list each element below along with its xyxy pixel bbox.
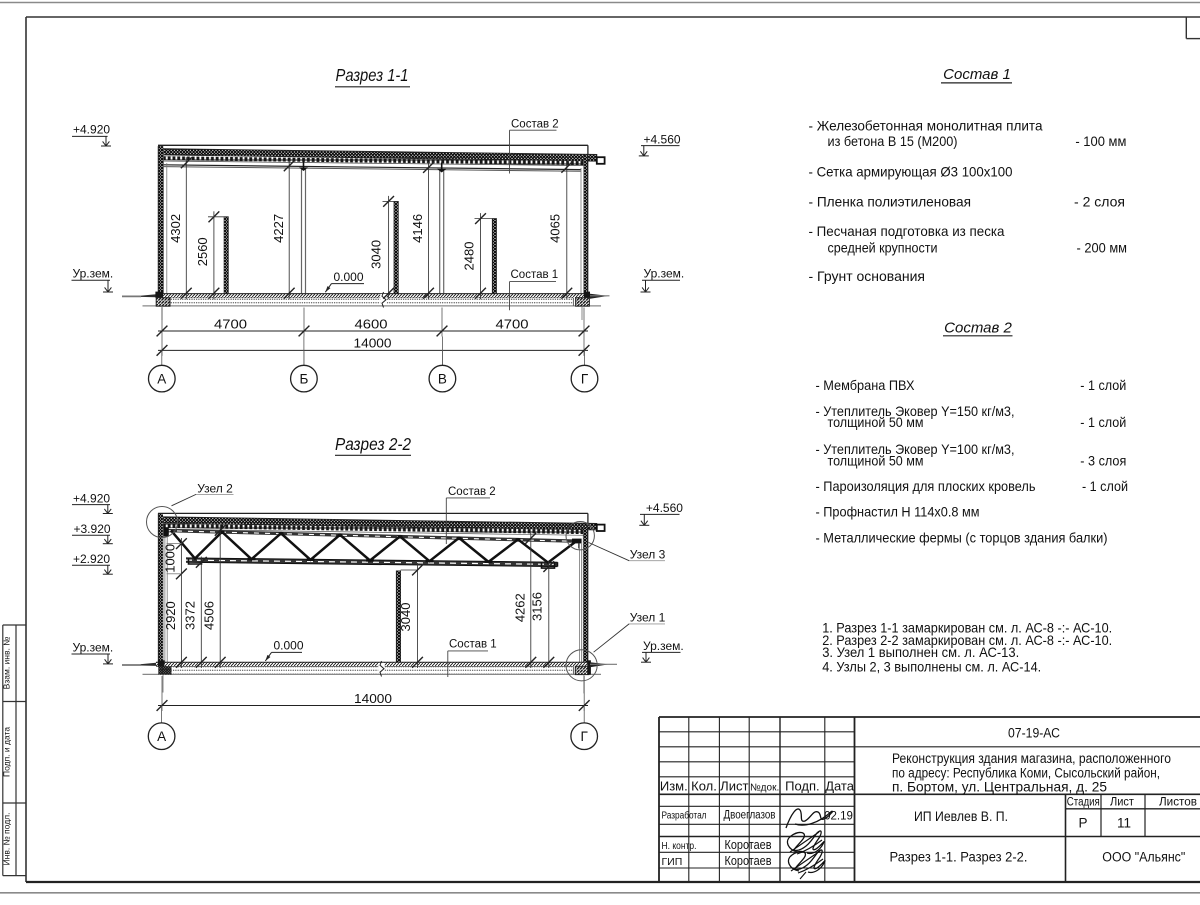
svg-text:Узел 1: Узел 1 <box>630 610 666 624</box>
svg-text:Стадия: Стадия <box>1067 797 1100 809</box>
svg-text:3040: 3040 <box>369 240 384 269</box>
svg-text:Подп. и дата: Подп. и дата <box>2 727 12 777</box>
svg-text:толщиной 50 мм: толщиной 50 мм <box>828 452 924 468</box>
svg-text:- 200 мм: - 200 мм <box>1077 239 1128 255</box>
svg-text:ИП Иевлев В. П.: ИП Иевлев В. П. <box>914 808 1008 824</box>
svg-text:А: А <box>157 729 166 744</box>
svg-text:3040: 3040 <box>398 603 413 632</box>
svg-text:2560: 2560 <box>195 237 210 266</box>
svg-text:Г: Г <box>581 729 589 744</box>
svg-text:14000: 14000 <box>354 691 392 706</box>
svg-text:1000: 1000 <box>163 544 178 573</box>
svg-text:2920: 2920 <box>163 601 178 630</box>
svg-text:Состав 1: Состав 1 <box>943 66 1011 83</box>
svg-text:14000: 14000 <box>354 336 392 351</box>
svg-text:Разрез 2-2: Разрез 2-2 <box>335 434 411 454</box>
svg-text:3156: 3156 <box>530 592 545 621</box>
svg-text:ООО "Альянс": ООО "Альянс" <box>1102 850 1185 865</box>
svg-text:Ур.зем.: Ур.зем. <box>73 640 114 654</box>
svg-text:Состав 2: Состав 2 <box>448 486 496 498</box>
svg-text:Лист: Лист <box>1110 797 1135 809</box>
svg-text:- 2 слоя: - 2 слоя <box>1074 193 1125 209</box>
svg-text:Ур.зем.: Ур.зем. <box>73 267 114 281</box>
svg-text:Н. контр.: Н. контр. <box>662 841 697 852</box>
svg-text:из бетона В 15 (М200): из бетона В 15 (М200) <box>828 133 958 149</box>
svg-text:4600: 4600 <box>355 316 388 331</box>
svg-text:4700: 4700 <box>214 316 247 331</box>
svg-text:Б: Б <box>299 371 308 386</box>
svg-text:- Железобетонная монолитная п: - Железобетонная монолитная плита <box>809 117 1043 133</box>
svg-text:2480: 2480 <box>461 242 476 271</box>
svg-text:Кол.: Кол. <box>691 778 717 793</box>
svg-text:Листов: Листов <box>1159 797 1197 809</box>
svg-text:4065: 4065 <box>547 214 562 243</box>
svg-text:4146: 4146 <box>410 214 425 243</box>
svg-text:толщиной 50 мм: толщиной 50 мм <box>828 414 924 430</box>
svg-text:- 3 слоя: - 3 слоя <box>1080 452 1126 468</box>
svg-text:Узел 3: Узел 3 <box>630 547 666 561</box>
svg-text:Состав 2: Состав 2 <box>944 320 1012 337</box>
svg-text:- Профнастил Н 114х0.8 мм: - Профнастил Н 114х0.8 мм <box>816 503 980 519</box>
svg-text:11: 11 <box>1117 816 1131 831</box>
svg-text:+2.920: +2.920 <box>73 552 110 566</box>
svg-text:4700: 4700 <box>496 316 529 331</box>
svg-text:ГИП: ГИП <box>662 856 683 868</box>
svg-text:- Песчаная подготовка из песка: - Песчаная подготовка из песка <box>809 223 1005 239</box>
svg-text:4302: 4302 <box>168 214 183 243</box>
svg-text:Ур.зем.: Ур.зем. <box>644 267 685 281</box>
svg-text:В: В <box>438 371 447 386</box>
svg-text:- 1 слой: - 1 слой <box>1080 377 1126 393</box>
svg-text:Реконструкция здания магазина,: Реконструкция здания магазина, расположе… <box>892 751 1171 766</box>
svg-text:4. Узлы 2, 3 выполнены см. л.: 4. Узлы 2, 3 выполнены см. л. АС-14. <box>822 659 1041 675</box>
svg-text:Изм.: Изм. <box>660 778 688 793</box>
svg-text:Г: Г <box>581 371 589 386</box>
svg-text:Дата: Дата <box>825 778 855 793</box>
svg-text:Р: Р <box>1078 816 1087 831</box>
svg-text:- Металлические фермы (с торцо: - Металлические фермы (с торцов здания б… <box>816 529 1108 545</box>
svg-text:+4.920: +4.920 <box>73 491 110 505</box>
svg-text:0.000: 0.000 <box>334 270 364 284</box>
svg-text:+4.560: +4.560 <box>646 501 683 515</box>
svg-text:Состав 2: Состав 2 <box>511 118 559 130</box>
svg-text:Коротаев: Коротаев <box>725 854 772 868</box>
svg-text:+3.920: +3.920 <box>74 522 111 536</box>
svg-text:Разрез 1-1. Разрез 2-2.: Разрез 1-1. Разрез 2-2. <box>890 850 1028 865</box>
svg-text:- Сетка армирующая Ø3 100х100: - Сетка армирующая Ø3 100х100 <box>809 163 1013 179</box>
svg-text:Состав 1: Состав 1 <box>511 269 559 281</box>
svg-text:Ур.зем.: Ур.зем. <box>643 639 684 653</box>
svg-text:средней крупности: средней крупности <box>828 239 938 255</box>
svg-text:Разработал: Разработал <box>662 810 707 822</box>
svg-text:- Пленка полиэтиленовая: - Пленка полиэтиленовая <box>809 193 972 209</box>
svg-text:4227: 4227 <box>271 214 286 243</box>
svg-text:+4.920: +4.920 <box>73 123 110 137</box>
svg-text:- 1 слой: - 1 слой <box>1080 414 1126 430</box>
svg-text:п. Бортом, ул. Центральная, д.: п. Бортом, ул. Центральная, д. 25 <box>892 779 1107 794</box>
svg-text:0.000: 0.000 <box>274 639 304 653</box>
svg-text:4262: 4262 <box>513 593 528 622</box>
svg-text:- 100 мм: - 100 мм <box>1075 133 1126 149</box>
svg-text:по адресу: Республика Коми, Сы: по адресу: Республика Коми, Сысольский р… <box>892 766 1160 781</box>
svg-text:Взам. инв. №: Взам. инв. № <box>2 637 12 690</box>
svg-text:- Пароизоляция для плоских кро: - Пароизоляция для плоских кровель <box>816 478 1036 494</box>
svg-text:4506: 4506 <box>202 601 217 630</box>
svg-text:Состав 1: Состав 1 <box>449 639 497 651</box>
svg-text:3372: 3372 <box>183 601 198 630</box>
svg-text:Двоеглазов: Двоеглазов <box>724 810 776 822</box>
svg-text:Лист: Лист <box>720 778 748 793</box>
svg-text:Узел 2: Узел 2 <box>197 482 233 496</box>
svg-text:- Грунт основания: - Грунт основания <box>809 268 926 284</box>
svg-text:Разрез 1-1: Разрез 1-1 <box>336 65 409 85</box>
svg-text:Коротаев: Коротаев <box>725 838 772 852</box>
svg-text:№док.: №док. <box>750 783 779 794</box>
svg-text:Подп.: Подп. <box>785 778 820 793</box>
svg-text:- 1 слой: - 1 слой <box>1082 478 1128 494</box>
svg-text:07-19-АС: 07-19-АС <box>1008 725 1060 740</box>
svg-text:Инв. № подл.: Инв. № подл. <box>2 813 12 866</box>
svg-text:+4.560: +4.560 <box>644 132 681 146</box>
svg-text:- Мембрана ПВХ: - Мембрана ПВХ <box>816 377 916 393</box>
svg-text:А: А <box>157 371 166 386</box>
